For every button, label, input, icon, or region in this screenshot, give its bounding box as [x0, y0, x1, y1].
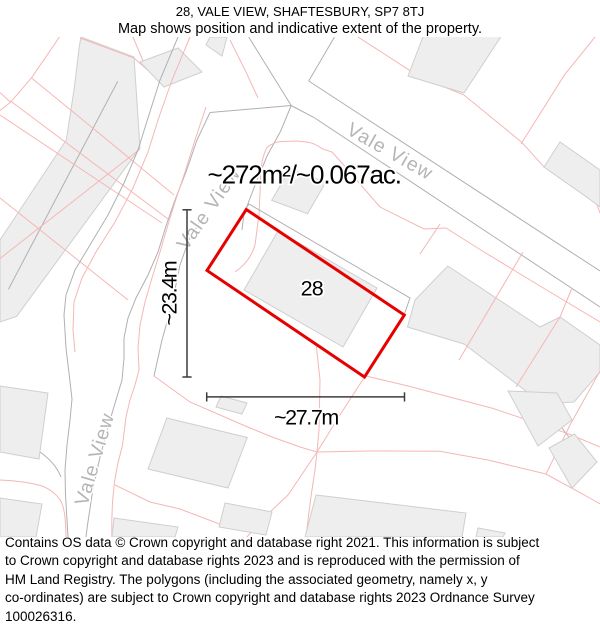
svg-text:~23.4m: ~23.4m [158, 261, 182, 325]
svg-text:Vale View: Vale View [71, 410, 119, 508]
svg-text:~272m²/~0.067ac.: ~272m²/~0.067ac. [208, 159, 401, 189]
svg-text:28: 28 [301, 277, 324, 301]
svg-text:~27.7m: ~27.7m [274, 406, 338, 430]
